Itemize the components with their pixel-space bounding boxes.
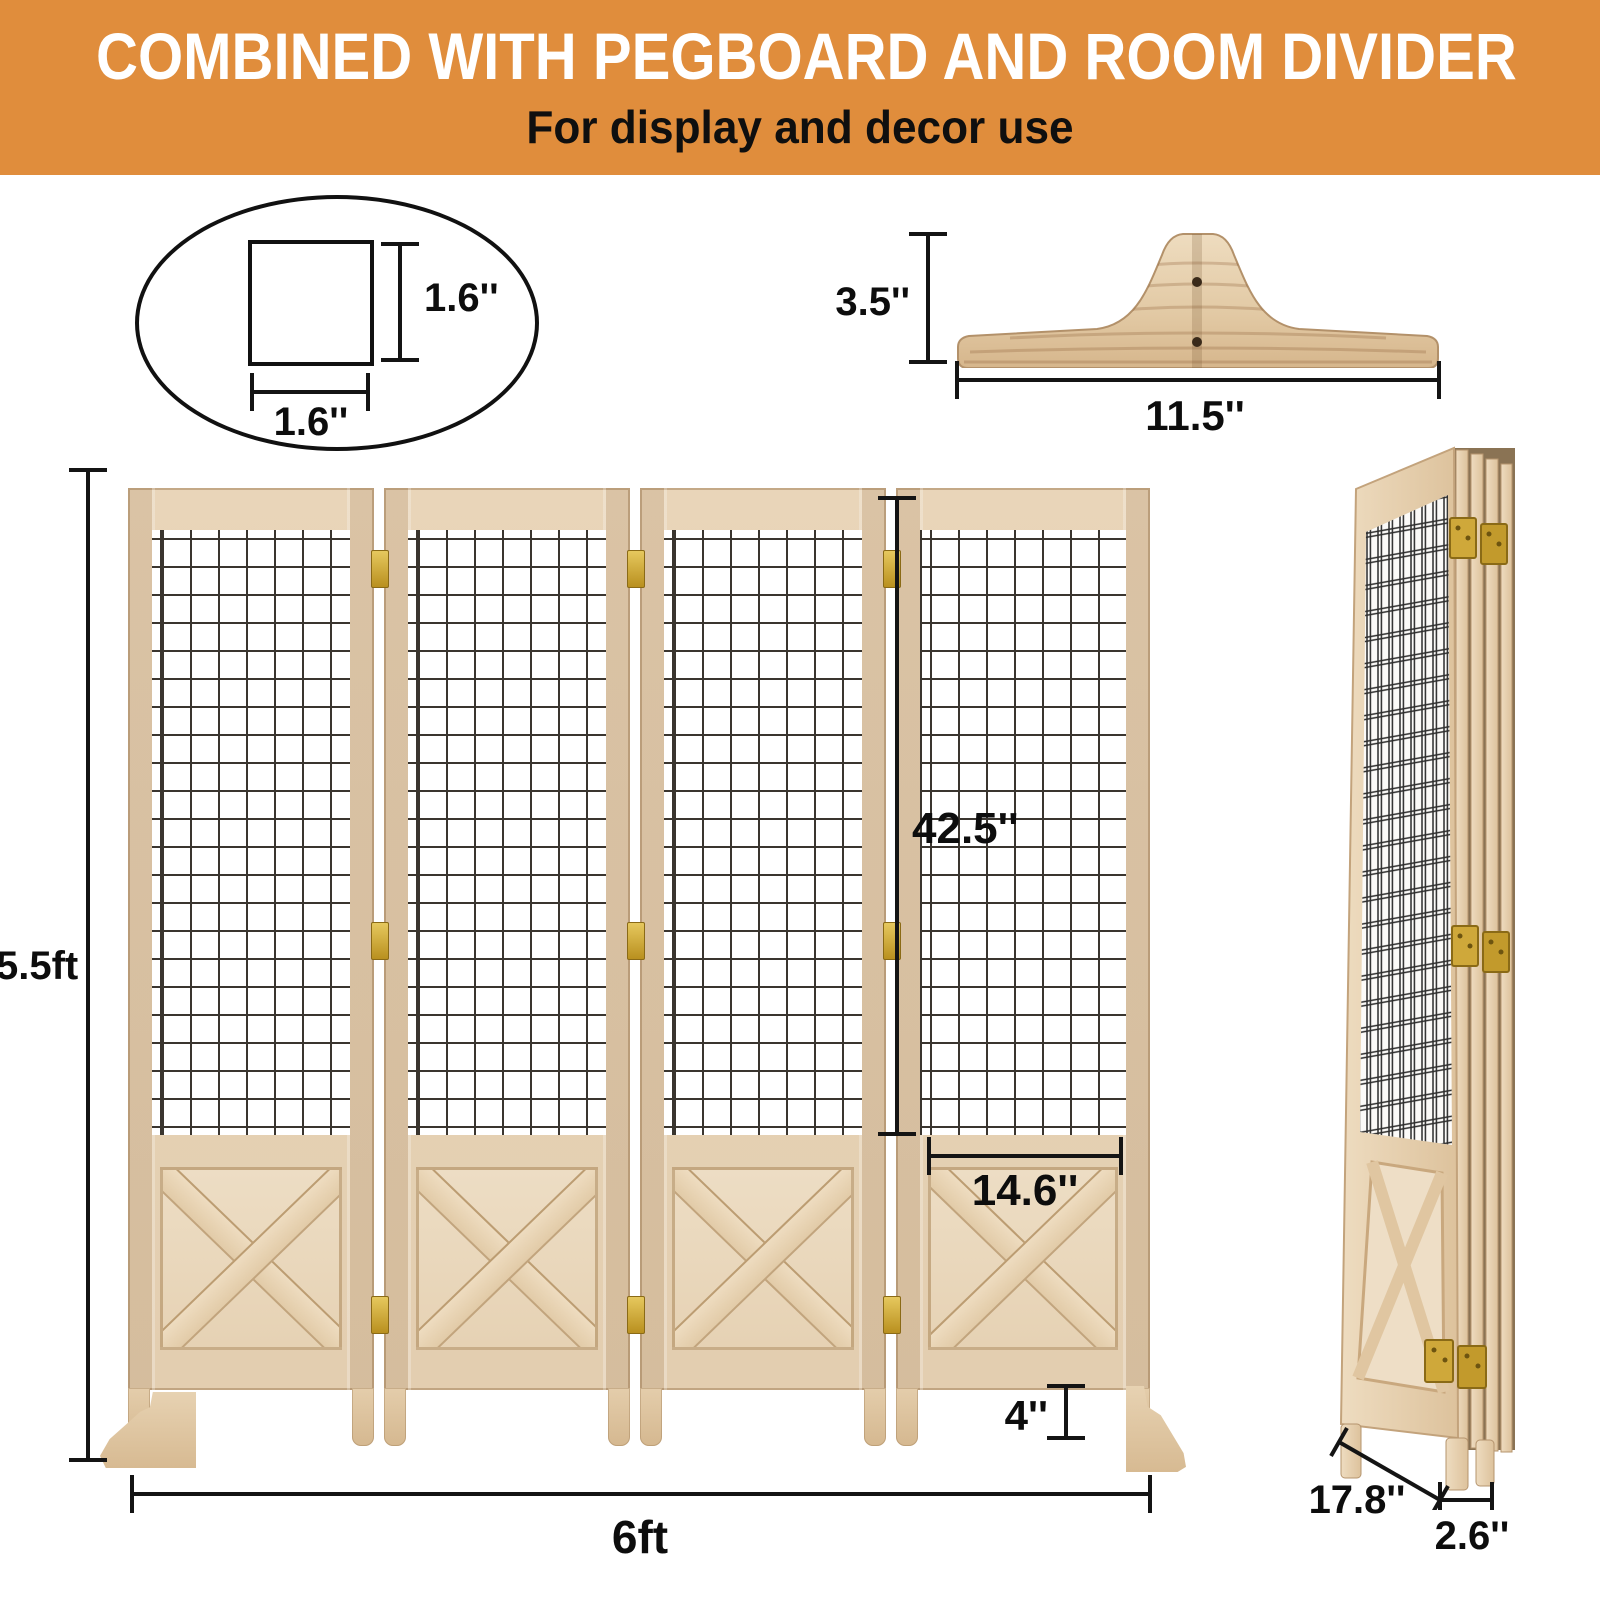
cell-height-dim-line <box>398 242 402 362</box>
product-dimension-infographic: COMBINED WITH PEGBOARD AND ROOM DIVIDER … <box>0 0 1600 1600</box>
panel-3-wire-mesh <box>664 530 862 1135</box>
screen-height-dim-label: 5.5ft <box>0 944 78 989</box>
page-title: COMBINED WITH PEGBOARD AND ROOM DIVIDER <box>96 18 1504 94</box>
panel-leg <box>608 1388 630 1446</box>
panel-leg <box>352 1388 374 1446</box>
panel-1-lower-board <box>160 1167 342 1350</box>
divider-panel-1 <box>128 488 374 1390</box>
cell-height-dim-label: 1.6'' <box>424 276 499 321</box>
foot-height-dim-line <box>1064 1384 1068 1440</box>
hinge <box>371 922 389 960</box>
mesh-height-dim-line <box>895 496 899 1136</box>
panel-2-lower-board <box>416 1167 598 1350</box>
hinge <box>371 550 389 588</box>
divider-panel-3 <box>640 488 886 1390</box>
divider-panel-4 <box>896 488 1150 1390</box>
foot-center-seam <box>1192 234 1202 368</box>
hinge <box>627 1296 645 1334</box>
panel-2-wire-mesh <box>408 530 606 1135</box>
panel-leg <box>384 1388 406 1446</box>
mesh-height-dim-label: 42.5'' <box>912 804 1019 854</box>
cell-width-dim-line <box>250 390 370 394</box>
screen-height-dim-line <box>86 468 90 1462</box>
header-banner: COMBINED WITH PEGBOARD AND ROOM DIVIDER … <box>0 0 1600 175</box>
foot-detail-width-dim-label: 11.5'' <box>1095 392 1295 440</box>
panel-width-dim-line <box>927 1154 1123 1158</box>
support-foot-illustration <box>950 226 1446 368</box>
screen-width-dim-line <box>130 1492 1152 1496</box>
panel-leg <box>640 1388 662 1446</box>
folded-wire-mesh <box>1360 495 1452 1145</box>
depth-dim-label: 17.8'' <box>1290 1478 1424 1523</box>
foot-detail-height-dim-line <box>926 232 930 364</box>
cell-width-dim-label: 1.6'' <box>234 400 388 445</box>
screw-hole-bottom <box>1192 337 1202 347</box>
panel-1-wire-mesh <box>152 530 350 1135</box>
hinge <box>371 1296 389 1334</box>
folded-view-illustration <box>1300 440 1540 1510</box>
thickness-dim-label: 2.6'' <box>1410 1514 1534 1559</box>
foot-detail-height-dim-label: 3.5'' <box>822 280 910 325</box>
folded-leg <box>1446 1438 1468 1490</box>
folded-leg <box>1476 1440 1494 1486</box>
hinge <box>627 550 645 588</box>
hinge <box>883 1296 901 1334</box>
hinge <box>627 922 645 960</box>
foot-height-dim-label: 4'' <box>964 1392 1048 1440</box>
panel-leg <box>864 1388 886 1446</box>
mesh-cell-square <box>248 240 374 366</box>
panel-3-lower-board <box>672 1167 854 1350</box>
panel-leg <box>896 1388 918 1446</box>
right-support-foot <box>1126 1386 1186 1472</box>
foot-detail-width-dim-line <box>955 378 1441 382</box>
screen-width-dim-label: 6ft <box>530 1510 750 1564</box>
screw-hole-top <box>1192 277 1202 287</box>
page-subtitle: For display and decor use <box>32 100 1568 154</box>
divider-panel-2 <box>384 488 630 1390</box>
panel-width-dim-label: 14.6'' <box>917 1166 1133 1216</box>
